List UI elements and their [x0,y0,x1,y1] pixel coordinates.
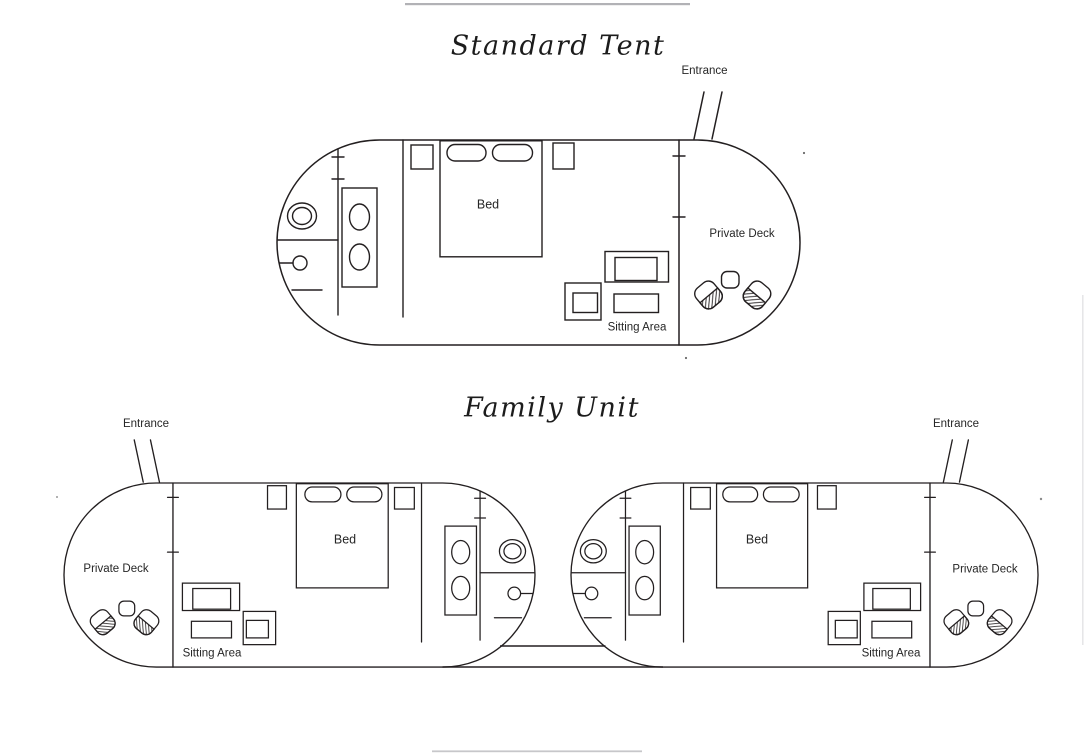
page-artifacts [56,3,1083,752]
sitting-area-label: Sitting Area [183,648,242,660]
family-left-tent-plan [64,440,535,667]
stray-dot [56,496,58,498]
family-unit-title: Family Unit [463,393,640,424]
family-connector-walkway [443,646,664,667]
private-deck-label: Private Deck [952,564,1017,576]
floor-plan-canvas: Standard Tent Family Unit Entrance Bed S… [0,0,1086,756]
bed-label: Bed [334,532,356,546]
entrance-label: Entrance [123,418,169,430]
standard-tent-title: Standard Tent [451,31,666,62]
sitting-area-label: Sitting Area [862,648,921,660]
bed-label: Bed [477,197,499,211]
private-deck-label: Private Deck [83,563,148,575]
bed-label: Bed [746,532,768,546]
bottom-edge-bar [432,750,642,752]
top-edge-bar [405,3,690,5]
entrance-label: Entrance [681,65,727,77]
standard-tent-plan [277,92,800,345]
stray-dot [1040,498,1042,500]
floor-plan-page: Standard Tent Family Unit Entrance Bed S… [0,0,1086,756]
family-right-tent-plan [571,440,1038,667]
sitting-area-label: Sitting Area [608,322,667,334]
stray-dot [803,152,805,154]
private-deck-label: Private Deck [709,228,774,240]
stray-dot [685,357,687,359]
entrance-label: Entrance [933,418,979,430]
right-edge-line [1082,295,1083,645]
